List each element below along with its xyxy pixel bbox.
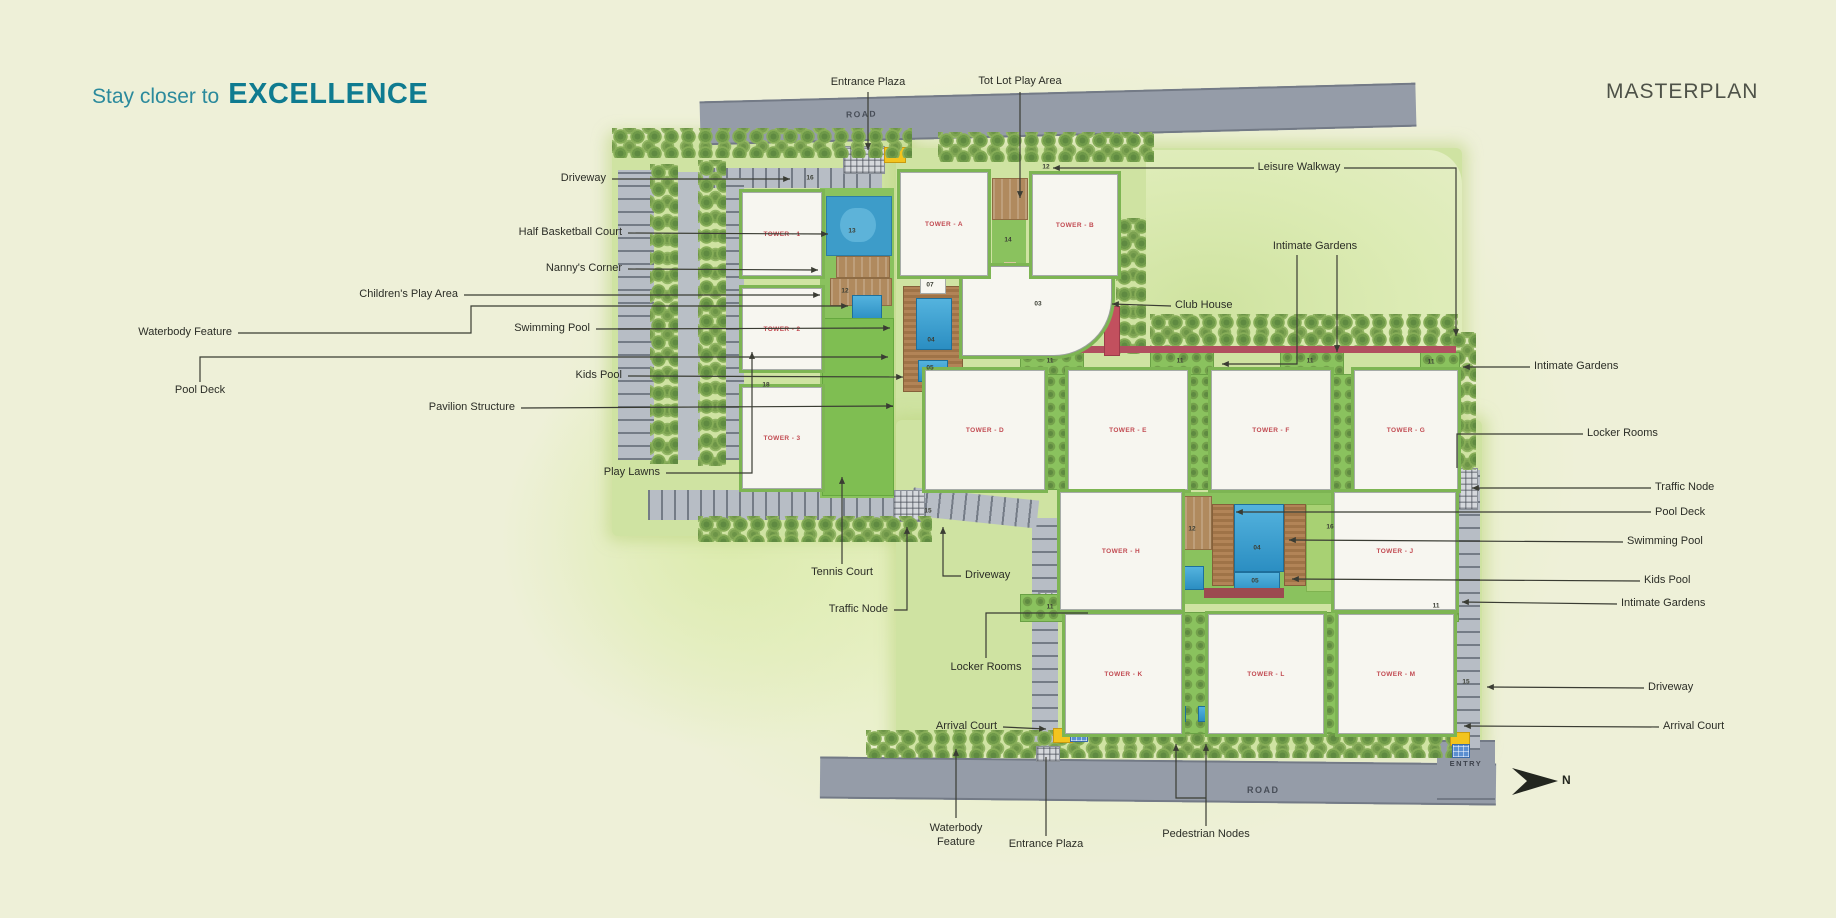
tot-lot-lawn xyxy=(992,220,1026,266)
tower-tG: TOWER - G xyxy=(1354,370,1458,490)
tower-label: TOWER - J xyxy=(1376,548,1413,555)
tower-t2: TOWER - 2 xyxy=(742,288,822,370)
tower-label: TOWER - K xyxy=(1104,671,1142,678)
tower-tJ: TOWER - J xyxy=(1334,492,1456,610)
trees-left-inner xyxy=(698,160,726,466)
road-label-bottom: ROAD xyxy=(1247,785,1280,795)
site-plan: TOWER - 1TOWER - 2TOWER - 3TOWER - ATOWE… xyxy=(0,0,1836,918)
tower-label: TOWER - E xyxy=(1109,427,1147,434)
garden-gap-ef xyxy=(1186,374,1213,490)
tot-lot-structure xyxy=(992,178,1028,220)
garden-gap-de xyxy=(1043,374,1070,490)
trees-leisure-walkway xyxy=(1116,218,1146,354)
tower-t3: TOWER - 3 xyxy=(742,387,822,489)
trees-sw xyxy=(698,516,932,542)
tower-label: TOWER - H xyxy=(1102,548,1140,555)
trees-bottom xyxy=(866,730,1454,758)
lower-swimming-pool xyxy=(1234,504,1284,572)
page-title: MASTERPLAN xyxy=(1606,80,1758,104)
tower-tE: TOWER - E xyxy=(1068,370,1188,490)
nannys-corner-area xyxy=(836,256,890,278)
tower-tA: TOWER - A xyxy=(900,172,988,276)
basketball-key xyxy=(840,208,876,242)
tagline-emphasis: EXCELLENCE xyxy=(228,78,428,111)
tower-label: TOWER - D xyxy=(966,427,1004,434)
tennis-lawn xyxy=(822,318,894,496)
tower-tM: TOWER - M xyxy=(1338,614,1454,734)
left-parking xyxy=(618,170,654,460)
tower-t1: TOWER - 1 xyxy=(742,192,822,276)
pool-room xyxy=(920,277,946,294)
tower-label: TOWER - 2 xyxy=(763,326,800,333)
tower-label: TOWER - A xyxy=(925,221,963,228)
road-label-top: ROAD xyxy=(846,109,877,120)
tower-label: TOWER - G xyxy=(1387,427,1426,434)
tower-label: TOWER - M xyxy=(1377,671,1416,678)
mid-driveway xyxy=(1032,518,1058,748)
lower-deck-left xyxy=(1212,504,1234,586)
trees-lawn-south xyxy=(1150,314,1458,346)
tower-tF: TOWER - F xyxy=(1211,370,1331,490)
road-bottom xyxy=(820,756,1496,805)
tower-label: TOWER - F xyxy=(1252,427,1289,434)
arrival-waterbody-right xyxy=(1452,744,1470,758)
tagline: Stay closer to EXCELLENCE xyxy=(92,78,428,111)
garden-gap-fg xyxy=(1329,374,1356,490)
tower-label: TOWER - 1 xyxy=(763,231,800,238)
lower-maroon-deck xyxy=(1204,588,1284,598)
upper-swimming-pool xyxy=(916,298,952,350)
north-label: N xyxy=(1562,773,1571,787)
tagline-prefix: Stay closer to xyxy=(92,85,219,109)
tower-tD: TOWER - D xyxy=(925,370,1045,490)
arrival-left-pave xyxy=(1036,746,1060,762)
entry-label: ENTRY xyxy=(1438,759,1494,768)
tower-label: TOWER - L xyxy=(1247,671,1284,678)
tower-tH: TOWER - H xyxy=(1060,492,1182,610)
left-aisle xyxy=(678,172,700,460)
masterplan-canvas: Stay closer to EXCELLENCE MASTERPLAN TOW… xyxy=(0,0,1836,918)
lower-small-pool xyxy=(1180,566,1204,590)
tower-label: TOWER - 3 xyxy=(763,435,800,442)
tower-tK: TOWER - K xyxy=(1065,614,1182,734)
trees-top-left xyxy=(612,128,912,158)
tower-tL: TOWER - L xyxy=(1208,614,1324,734)
clubhouse xyxy=(962,266,1112,356)
trees-left-outer xyxy=(650,164,678,464)
trees-top-mid xyxy=(938,132,1154,162)
tower-tB: TOWER - B xyxy=(1032,174,1118,276)
tower-label: TOWER - B xyxy=(1056,222,1094,229)
lower-deck-right xyxy=(1284,504,1306,586)
